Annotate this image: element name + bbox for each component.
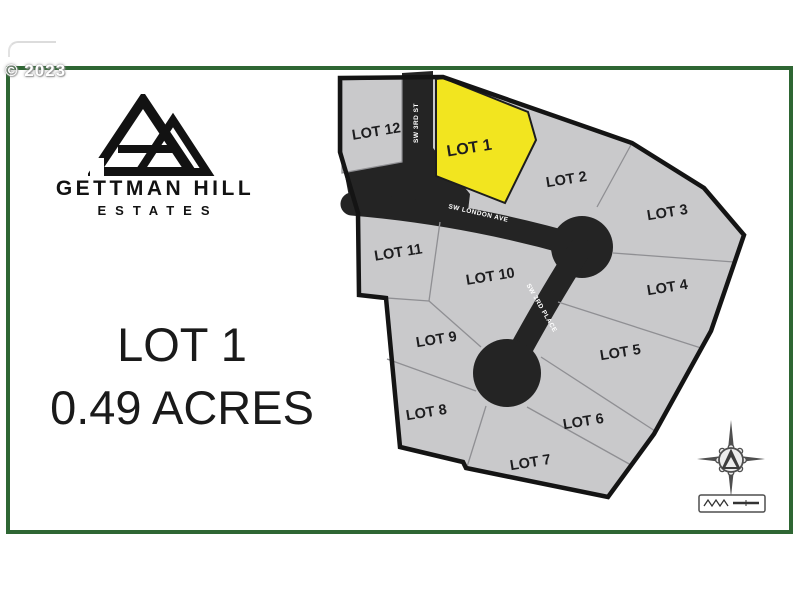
scale-bar-icon xyxy=(699,495,765,512)
copyright-watermark: © 2023 xyxy=(5,61,66,81)
listing-image: © 2023 GETTMAN HILL ESTATES LOT 1 0.49 A… xyxy=(0,0,800,600)
compass-north-icon xyxy=(697,420,765,497)
street-label-3rd-st: SW 3RD ST xyxy=(413,103,420,143)
plat-map: SW 3RD ST SW LONDON AVE SW 3RD PLACE LOT… xyxy=(0,0,800,600)
cul-de-sac-shape xyxy=(473,339,541,407)
